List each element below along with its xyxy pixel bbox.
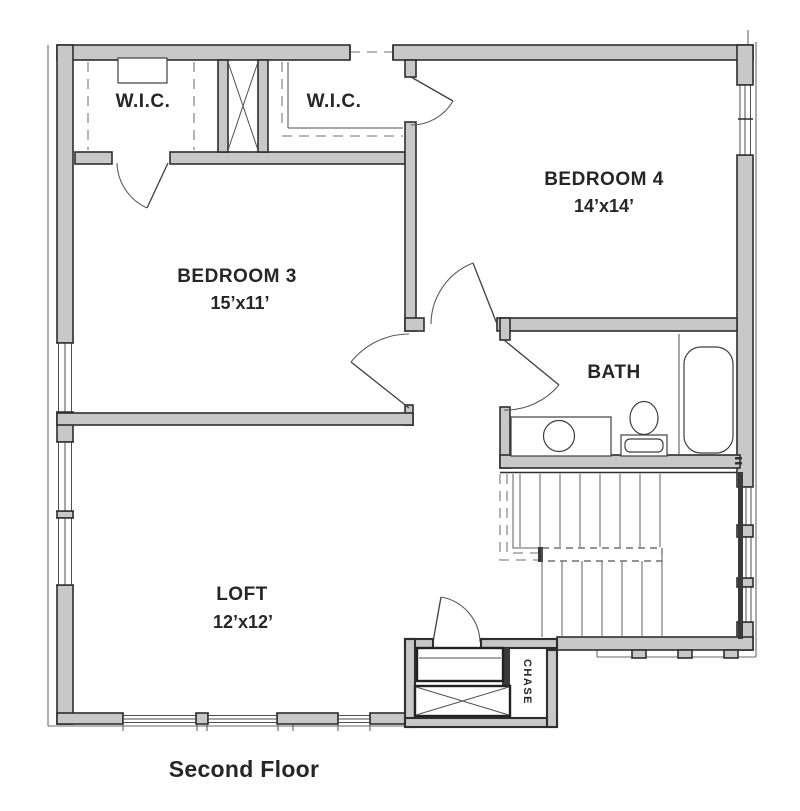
stair-mid-rail (538, 547, 662, 562)
window-left-2 (56, 442, 74, 511)
room-label-wic2: W.I.C. (307, 91, 362, 112)
bedroom4-door (431, 263, 497, 324)
plan-caption: Second Floor (169, 756, 320, 782)
bath-fixtures (511, 334, 742, 465)
window-sill-ticks (123, 724, 370, 731)
wic1-shelf (118, 58, 167, 83)
floor-plan-drawing: CHASE W.I.C. W.I.C. BEDROOM 4 14’x14’ BE… (0, 0, 800, 811)
room-dims-bedroom4: 14’x14’ (574, 196, 634, 216)
veneer-lines (48, 30, 756, 726)
room-label-loft: LOFT (216, 584, 268, 605)
floor-plan-page: CHASE W.I.C. W.I.C. BEDROOM 4 14’x14’ BE… (0, 0, 800, 811)
flue-x-box (228, 62, 258, 150)
room-label-bath: BATH (587, 362, 640, 383)
room-label-wic1: W.I.C. (116, 91, 171, 112)
room-label-bedroom4: BEDROOM 4 (544, 169, 664, 190)
window-bedroom4 (738, 85, 753, 155)
chase-x-panel (415, 686, 510, 716)
wic2-door (411, 77, 453, 125)
room-dims-loft: 12’x12’ (213, 612, 273, 632)
bath-door (504, 340, 559, 410)
bathtub (679, 334, 733, 455)
window-left-3 (56, 518, 74, 585)
chase-door (433, 597, 480, 642)
window-opening-dashed (350, 45, 393, 60)
chase-box: CHASE (405, 639, 557, 727)
room-dims-bedroom3: 15’x11’ (210, 293, 269, 313)
vanity-sink (511, 417, 611, 456)
stair-right-stringer (738, 472, 743, 639)
room-label-chase: CHASE (521, 659, 533, 705)
window-left-1 (56, 343, 74, 412)
stairs (500, 472, 743, 639)
toilet (621, 402, 667, 457)
stair-upper-run (513, 474, 660, 548)
window-bottom-1 (123, 713, 196, 724)
window-bottom-2 (208, 713, 277, 724)
room-label-bedroom3: BEDROOM 3 (177, 266, 297, 287)
window-bottom-3 (338, 713, 370, 724)
chase-cabinet (417, 648, 503, 681)
wic1-door (117, 163, 168, 208)
bedroom3-door (351, 334, 409, 408)
